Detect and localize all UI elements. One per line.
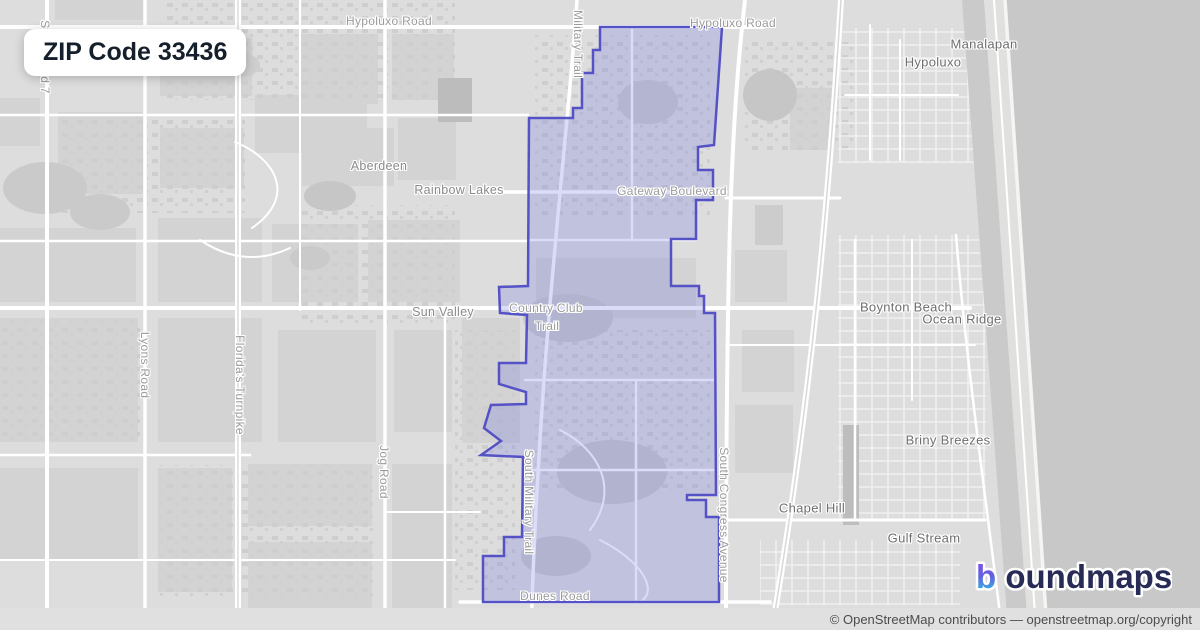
city-label: Gulf Stream xyxy=(888,531,961,546)
zip-code-badge: ZIP Code 33436 xyxy=(24,29,246,76)
area-label: Rainbow Lakes xyxy=(414,183,503,197)
road-label: Jog Road xyxy=(377,445,391,499)
city-label: Hypoluxo xyxy=(905,55,962,70)
city-label: Chapel Hill xyxy=(779,501,845,516)
road-label: Lyons Road xyxy=(138,332,152,399)
boundmaps-logo-graphic: b oundmaps xyxy=(972,555,1172,599)
road-label: Hypoluxo Road xyxy=(346,14,432,28)
attribution-link[interactable]: © OpenStreetMap contributors — openstree… xyxy=(830,612,1200,627)
map-graphics xyxy=(0,0,1200,630)
attribution-bar: © OpenStreetMap contributors — openstree… xyxy=(0,608,1200,630)
road-label: Trail xyxy=(535,319,559,333)
city-label: Ocean Ridge xyxy=(922,312,1001,327)
map-share-image: Hypoluxo RoadHypoluxo RoadMilitary Trail… xyxy=(0,0,1200,630)
road-label: South Congress Avenue xyxy=(717,447,731,583)
road-label: Country Club xyxy=(509,301,583,315)
road-label: Gateway Boulevard xyxy=(617,184,727,198)
zip-code-badge-label: ZIP Code 33436 xyxy=(43,38,227,66)
area-label: Aberdeen xyxy=(351,159,408,173)
logo-b-glyph: b xyxy=(976,558,996,595)
road-label: Military Trail xyxy=(571,10,585,78)
road-label: Florida's Turnpike xyxy=(233,335,247,435)
logo-rest-text: oundmaps xyxy=(1005,558,1172,595)
boundmaps-logo[interactable]: b oundmaps xyxy=(972,555,1172,604)
boundmaps-logo-text: b oundmaps xyxy=(976,558,1172,595)
road-label: Dunes Road xyxy=(520,589,590,603)
city-label: Briny Breezes xyxy=(906,433,991,448)
road-label: South Military Trail xyxy=(522,450,536,555)
road-label: Hypoluxo Road xyxy=(690,16,776,30)
city-label: Manalapan xyxy=(950,37,1017,52)
area-label: Sun Valley xyxy=(412,305,474,319)
